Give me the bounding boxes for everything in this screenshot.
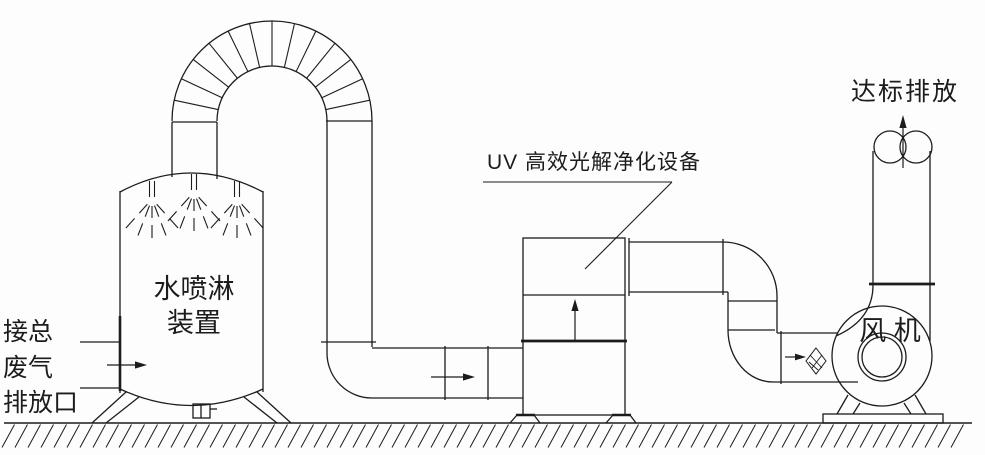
spray-tower: 水喷淋 装置: [80, 173, 291, 423]
fan-supports: [823, 395, 943, 423]
uv-photolysis-unit: UV 高效光解净化设备: [483, 151, 701, 423]
inlet-label-line3: 排放口: [3, 389, 78, 417]
process-flow-diagram: 水喷淋 装置 接总 废气 排放口: [0, 0, 985, 455]
exhaust-stack: 达标排放: [851, 78, 959, 284]
inlet-flow-arrow: [107, 361, 147, 368]
ground-hatch: [2, 425, 964, 448]
duct-to-uv-unit: [321, 342, 523, 400]
diagram-canvas: 水喷淋 装置 接总 废气 排放口: [0, 0, 985, 455]
inlet-labels: 接总 废气 排放口: [3, 318, 78, 417]
tower-drain-valve: [193, 404, 217, 418]
uv-unit-feet: [510, 415, 636, 423]
duct-flow-arrow: [431, 373, 475, 380]
bend-gore-seams: [174, 21, 370, 110]
inlet-label-line1: 接总: [3, 318, 53, 346]
tower-bottom-head: [120, 389, 263, 406]
centrifugal-fan: 风 机: [823, 284, 943, 423]
spray-nozzles: [126, 174, 263, 238]
duct-uv-to-fan: [629, 239, 858, 384]
tower-label-line2: 装置: [167, 308, 221, 338]
tower-label-line1: 水喷淋: [154, 274, 235, 304]
uv-unit-label: UV 高效光解净化设备: [487, 151, 701, 174]
uv-unit-callout: UV 高效光解净化设备: [483, 151, 701, 269]
uv-flow-arrow: [571, 299, 578, 340]
ground: [2, 423, 972, 448]
fan-inlet-flow-arrow: [785, 354, 806, 361]
flexible-connector-symbol: [806, 348, 826, 374]
outlet-label: 达标排放: [851, 78, 959, 106]
inlet-label-line2: 废气: [3, 354, 53, 382]
tower-legs: [92, 392, 291, 423]
fan-base-plate: [823, 414, 943, 423]
fan-label: 风 机: [859, 316, 921, 346]
